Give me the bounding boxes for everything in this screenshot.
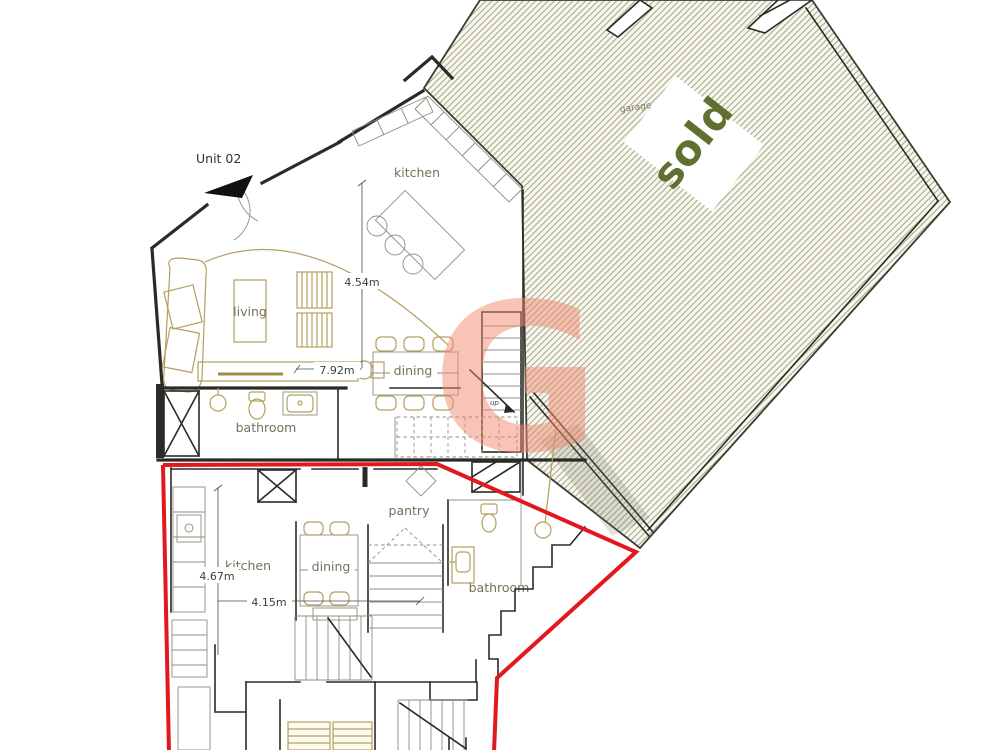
dining-upper-label: dining — [394, 363, 433, 378]
shelving-units — [297, 272, 332, 347]
kitchen-upper-label: kitchen — [394, 165, 440, 180]
bathroom-lower-label: bathroom — [469, 580, 530, 595]
agency-watermark-g: G — [432, 261, 600, 499]
floor-plan-page: sold garage — [0, 0, 1000, 750]
bottom-cabinets — [288, 722, 372, 750]
staircase-lower — [295, 616, 372, 680]
dim-792: 7.92m — [319, 364, 354, 377]
dim-454: 4.54m — [344, 276, 379, 289]
bathroom-upper-label: bathroom — [236, 420, 297, 435]
dim-415: 4.15m — [251, 596, 286, 609]
kitchen-counters — [172, 487, 210, 750]
floor-plan-svg: sold garage — [0, 0, 1000, 750]
lift-shaft — [258, 470, 296, 502]
pantry-label: pantry — [389, 503, 431, 518]
dining-lower-label: dining — [312, 559, 351, 574]
jagged-wall — [489, 527, 585, 676]
sofa — [162, 258, 206, 392]
living-label: living — [233, 304, 267, 319]
unit-02-label: Unit 02 — [196, 151, 241, 166]
staircase-bottom — [398, 700, 468, 750]
dim-467: 4.67m — [199, 570, 234, 583]
staircase-pantry — [368, 525, 443, 632]
